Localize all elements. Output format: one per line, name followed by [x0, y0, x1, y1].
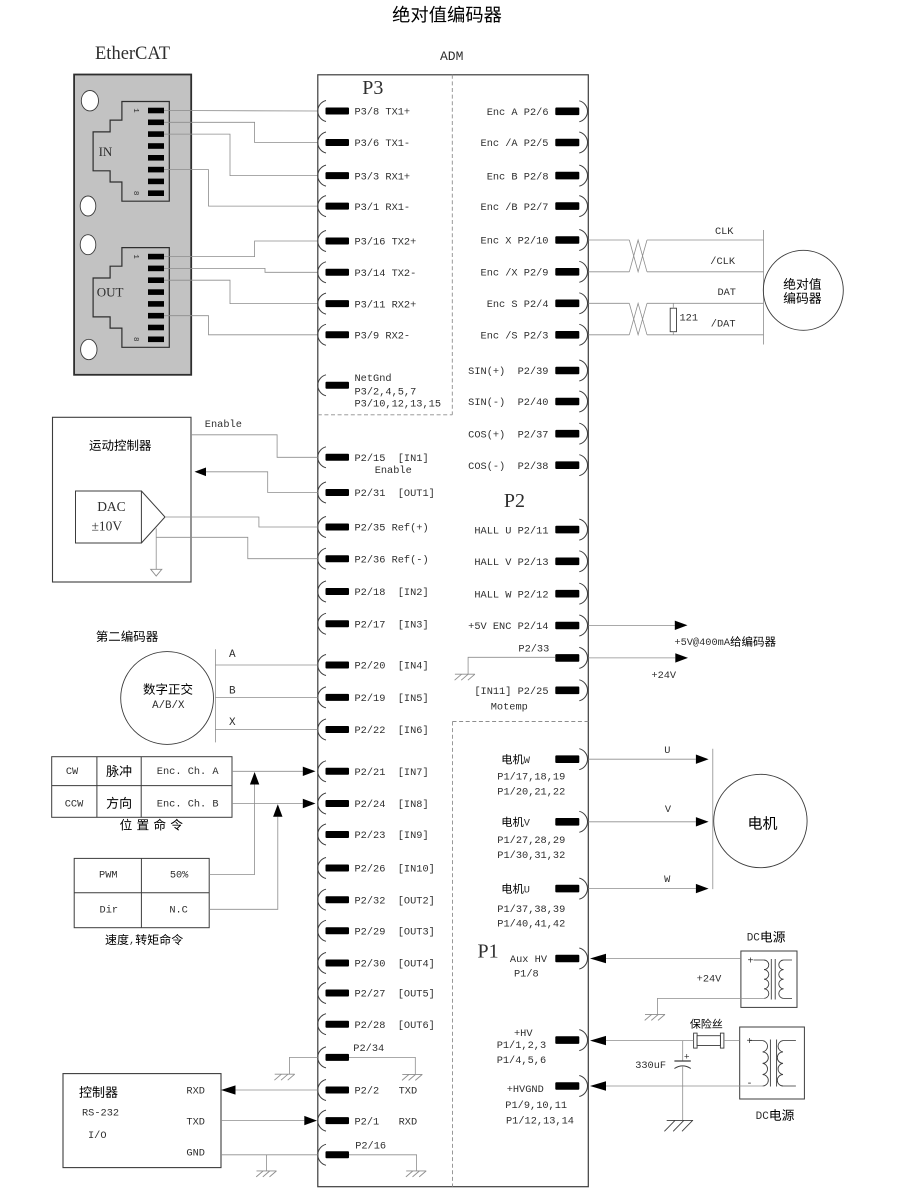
- svg-text:EtherCAT: EtherCAT: [95, 44, 170, 64]
- svg-text:8: 8: [131, 191, 139, 196]
- svg-text:OUT: OUT: [97, 285, 124, 300]
- svg-text:,: ,: [129, 935, 135, 947]
- svg-text:P3: P3: [362, 77, 383, 99]
- svg-text:RS-232: RS-232: [82, 1107, 119, 1119]
- svg-text:+24V: +24V: [697, 974, 723, 986]
- svg-text:P3/6 TX1-: P3/6 TX1-: [355, 138, 411, 150]
- svg-text:P1/8: P1/8: [514, 968, 539, 980]
- svg-text:P2/35 Ref(+): P2/35 Ref(+): [355, 523, 429, 535]
- svg-text:P2: P2: [504, 490, 525, 512]
- svg-text:DAC: DAC: [97, 499, 126, 514]
- svg-text:A/B/X: A/B/X: [152, 700, 185, 712]
- svg-text:Enc A P2/6: Enc A P2/6: [487, 107, 549, 119]
- svg-text:+: +: [748, 957, 754, 968]
- svg-text:TXD: TXD: [186, 1117, 205, 1129]
- svg-text:P2/26 [IN10]: P2/26 [IN10]: [355, 864, 435, 876]
- svg-text:X: X: [229, 717, 236, 729]
- svg-text:SIN(+) P2/39: SIN(+) P2/39: [468, 366, 548, 378]
- svg-text:8: 8: [131, 337, 139, 342]
- svg-text:P2/31 [OUT1]: P2/31 [OUT1]: [355, 488, 435, 500]
- svg-text:P1/9,10,11: P1/9,10,11: [505, 1100, 567, 1112]
- svg-text:P2/30 [OUT4]: P2/30 [OUT4]: [355, 959, 435, 971]
- svg-text:P3/3 RX1+: P3/3 RX1+: [355, 171, 411, 183]
- svg-text:121: 121: [680, 313, 699, 325]
- svg-text:W: W: [664, 874, 671, 886]
- svg-text:P2/32 [OUT2]: P2/32 [OUT2]: [355, 895, 435, 907]
- svg-text:PWM: PWM: [99, 870, 118, 882]
- svg-text:Motemp: Motemp: [491, 702, 528, 714]
- svg-text:P2/28 [OUT6]: P2/28 [OUT6]: [355, 1020, 435, 1032]
- svg-text:Enc. Ch. A: Enc. Ch. A: [157, 766, 220, 778]
- svg-text:330uF: 330uF: [635, 1060, 666, 1072]
- svg-text:P3/2,4,5,7: P3/2,4,5,7: [355, 386, 417, 398]
- svg-text:ADM: ADM: [440, 49, 463, 64]
- svg-text:P2/17 [IN3]: P2/17 [IN3]: [355, 620, 429, 632]
- svg-text:P1: P1: [478, 941, 499, 963]
- svg-text:U: U: [664, 745, 670, 757]
- svg-text:Dir: Dir: [100, 905, 119, 917]
- svg-text:DC: DC: [747, 933, 761, 945]
- svg-text:P2/2: P2/2: [355, 1086, 380, 1098]
- svg-text:P2/21 [IN7]: P2/21 [IN7]: [355, 767, 429, 779]
- svg-text:V: V: [524, 818, 531, 830]
- svg-text:Enc /A P2/5: Enc /A P2/5: [481, 138, 549, 150]
- svg-text:P3/11 RX2+: P3/11 RX2+: [355, 299, 417, 311]
- svg-text:P1/20,21,22: P1/20,21,22: [497, 786, 565, 798]
- svg-text:P2/36 Ref(-): P2/36 Ref(-): [355, 554, 429, 566]
- svg-text:SIN(-) P2/40: SIN(-) P2/40: [468, 397, 548, 409]
- svg-text:Enable: Enable: [375, 465, 412, 477]
- svg-text:+5V ENC P2/14: +5V ENC P2/14: [468, 621, 548, 633]
- svg-text:P3/9 RX2-: P3/9 RX2-: [355, 331, 411, 343]
- svg-text:P2/33: P2/33: [518, 643, 549, 655]
- svg-text:P2/27 [OUT5]: P2/27 [OUT5]: [355, 989, 435, 1001]
- svg-text:+5V@400mA: +5V@400mA: [674, 637, 730, 649]
- svg-text:IN: IN: [99, 144, 113, 159]
- svg-text:/DAT: /DAT: [711, 319, 736, 331]
- svg-text:W: W: [524, 755, 531, 767]
- svg-text:+: +: [684, 1051, 690, 1062]
- svg-text:P2/18 [IN2]: P2/18 [IN2]: [355, 587, 429, 599]
- svg-text:DAT: DAT: [717, 287, 736, 299]
- svg-text:P1/1,2,3: P1/1,2,3: [497, 1040, 546, 1052]
- svg-text:Enc S P2/4: Enc S P2/4: [487, 299, 549, 311]
- svg-text:P2/16: P2/16: [355, 1140, 386, 1152]
- svg-text:COS(-) P2/38: COS(-) P2/38: [468, 461, 548, 473]
- svg-text:Enc /B P2/7: Enc /B P2/7: [481, 202, 549, 214]
- svg-text:P1/40,41,42: P1/40,41,42: [497, 918, 565, 930]
- svg-text:+24V: +24V: [651, 670, 677, 682]
- svg-text:1: 1: [131, 254, 139, 259]
- svg-text:[IN11] P2/25: [IN11] P2/25: [474, 686, 548, 698]
- svg-text:+HVGND: +HVGND: [507, 1084, 544, 1096]
- svg-text:Enable: Enable: [205, 419, 242, 431]
- svg-text:P2/23 [IN9]: P2/23 [IN9]: [355, 830, 429, 842]
- svg-text:P2/20 [IN4]: P2/20 [IN4]: [355, 661, 429, 673]
- svg-text:P1/37,38,39: P1/37,38,39: [497, 904, 565, 916]
- svg-text:1: 1: [131, 108, 139, 113]
- svg-text:RXD: RXD: [399, 1116, 418, 1128]
- svg-text:CLK: CLK: [715, 226, 734, 238]
- svg-text:P3/16 TX2+: P3/16 TX2+: [355, 237, 417, 249]
- svg-text:RXD: RXD: [186, 1085, 205, 1097]
- svg-text:HALL V P2/13: HALL V P2/13: [474, 557, 548, 569]
- svg-text:P2/22 [IN6]: P2/22 [IN6]: [355, 725, 429, 737]
- svg-text:TXD: TXD: [399, 1086, 418, 1098]
- svg-text:50%: 50%: [170, 870, 189, 882]
- svg-text:P2/24 [IN8]: P2/24 [IN8]: [355, 799, 429, 811]
- svg-text:P3/14 TX2-: P3/14 TX2-: [355, 268, 417, 280]
- svg-text:P2/15 [IN1]: P2/15 [IN1]: [355, 453, 429, 465]
- svg-text:P1/30,31,32: P1/30,31,32: [497, 850, 565, 862]
- svg-text:+: +: [747, 1037, 753, 1048]
- svg-text:P2/1: P2/1: [355, 1116, 380, 1128]
- svg-text:Enc /X P2/9: Enc /X P2/9: [481, 268, 549, 280]
- svg-text:COS(+) P2/37: COS(+) P2/37: [468, 429, 548, 441]
- svg-text:±10V: ±10V: [92, 519, 123, 534]
- svg-text:DC: DC: [756, 1111, 770, 1123]
- svg-text:P3/1 RX1-: P3/1 RX1-: [355, 202, 411, 214]
- svg-text:Enc X P2/10: Enc X P2/10: [481, 236, 549, 248]
- svg-text:P1/12,13,14: P1/12,13,14: [506, 1115, 574, 1127]
- svg-text:+HV: +HV: [514, 1028, 533, 1040]
- svg-text:CCW: CCW: [65, 799, 84, 811]
- svg-text:HALL W P2/12: HALL W P2/12: [474, 589, 548, 601]
- svg-text:P1/4,5,6: P1/4,5,6: [497, 1055, 546, 1067]
- svg-text:-: -: [747, 1079, 753, 1090]
- svg-text:P1/17,18,19: P1/17,18,19: [497, 771, 565, 783]
- svg-text:U: U: [524, 884, 530, 896]
- svg-text:Enc /S P2/3: Enc /S P2/3: [481, 331, 549, 343]
- svg-text:V: V: [665, 804, 672, 816]
- svg-text:NetGnd: NetGnd: [355, 373, 392, 385]
- svg-text:/CLK: /CLK: [710, 256, 736, 268]
- svg-text:Enc B P2/8: Enc B P2/8: [487, 171, 549, 183]
- svg-text:I/O: I/O: [88, 1130, 107, 1142]
- svg-text:Enc. Ch. B: Enc. Ch. B: [157, 799, 219, 811]
- svg-text:P3/10,12,13,15: P3/10,12,13,15: [355, 399, 442, 411]
- svg-text:A: A: [229, 649, 236, 661]
- svg-text:P3/8 TX1+: P3/8 TX1+: [355, 107, 411, 119]
- svg-text:Aux HV: Aux HV: [510, 954, 548, 966]
- svg-text:CW: CW: [66, 766, 79, 778]
- svg-text:P2/34: P2/34: [353, 1043, 384, 1055]
- svg-text:P2/19 [IN5]: P2/19 [IN5]: [355, 693, 429, 705]
- svg-text:P2/29 [OUT3]: P2/29 [OUT3]: [355, 927, 435, 939]
- svg-text:B: B: [229, 686, 236, 698]
- svg-text:GND: GND: [186, 1148, 205, 1160]
- svg-text:P1/27,28,29: P1/27,28,29: [497, 835, 565, 847]
- svg-text:N.C: N.C: [169, 905, 188, 917]
- svg-text:HALL U P2/11: HALL U P2/11: [474, 525, 548, 537]
